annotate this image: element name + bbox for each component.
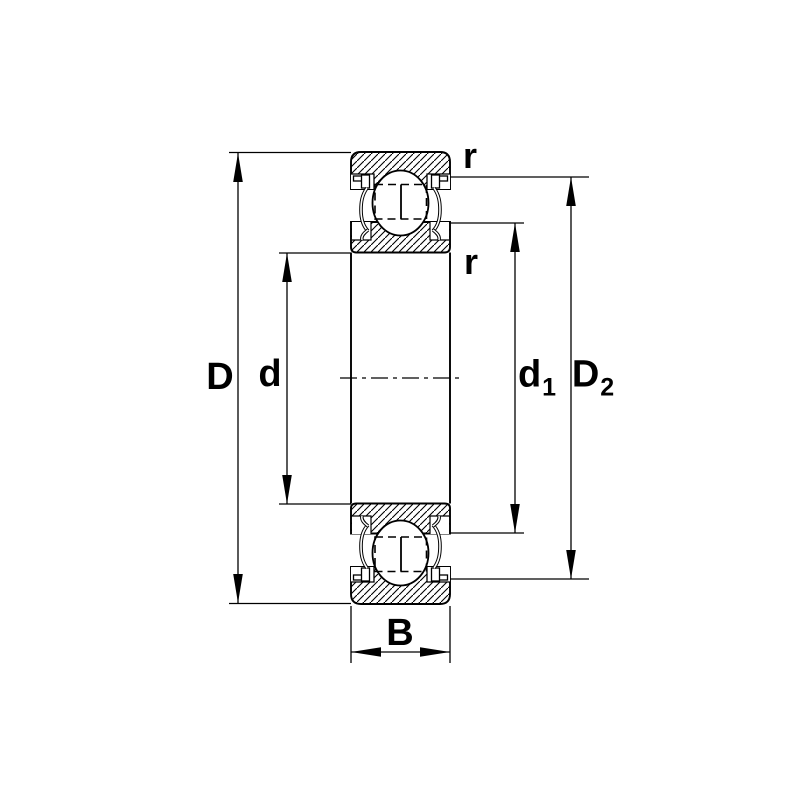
bearing-dimension-diagram: D d d1 D2 r r B [0, 0, 800, 800]
dim-label-D2: D2 [572, 356, 614, 401]
arrow-d1-up [510, 223, 520, 252]
dim-label-d1-base: d [518, 354, 541, 396]
bearing-top-section [351, 152, 450, 253]
arrow-D2-down [566, 550, 576, 579]
arrow-D-up [233, 153, 243, 182]
dim-d1 [450, 223, 524, 533]
arrow-d-down [282, 475, 292, 504]
arrow-D2-up [566, 177, 576, 206]
dim-D [229, 153, 351, 604]
arrow-d1-down [510, 504, 520, 533]
dim-label-d: d [258, 355, 281, 393]
dim-label-B: B [386, 614, 413, 652]
bearing-cross-section-drawing [0, 0, 800, 800]
dim-label-r-top: r [463, 138, 477, 174]
dim-label-r-bottom: r [464, 244, 478, 280]
dim-label-d1: d1 [518, 356, 556, 401]
dim-label-D2-sub: 2 [600, 374, 614, 402]
arrow-D-down [233, 574, 243, 603]
dim-label-D2-base: D [572, 354, 599, 396]
arrow-B-left [351, 647, 381, 657]
dim-label-D: D [206, 358, 233, 396]
arrow-B-right [420, 647, 450, 657]
dim-label-d-text: d [258, 353, 281, 395]
bearing-bottom-section [351, 504, 450, 605]
dim-label-r-bottom-text: r [464, 241, 478, 282]
dim-label-d1-sub: 1 [542, 374, 556, 402]
dim-label-r-top-text: r [463, 135, 477, 176]
dim-label-D-text: D [206, 356, 233, 398]
dim-label-B-text: B [386, 612, 413, 654]
arrow-d-up [282, 253, 292, 282]
